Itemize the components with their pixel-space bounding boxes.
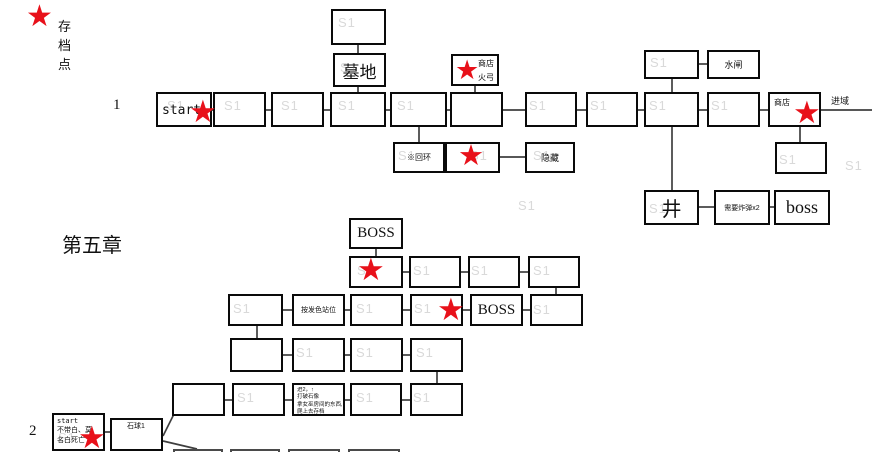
- watermark-text: S1: [167, 98, 185, 113]
- box-shop-firebow-label-0: 商店: [478, 60, 494, 68]
- box-hair-color: 按发色站位: [292, 294, 345, 326]
- row2-number: 2: [29, 423, 37, 440]
- watermark-text: S1: [649, 201, 667, 216]
- watermark-text: S1: [590, 98, 608, 113]
- watermark-text: S1: [650, 55, 668, 70]
- watermark-text: S1: [296, 345, 314, 360]
- box-ch5-boss-top: BOSS: [349, 218, 403, 249]
- box-ch5-boss2-label: BOSS: [478, 302, 516, 319]
- box-ch5-boss-top-label: BOSS: [357, 225, 395, 242]
- save-star-ch5-row3-icon: ★: [437, 295, 465, 326]
- box-shop-right-label-0: 商店: [774, 99, 790, 107]
- row1-number: 1: [113, 97, 121, 114]
- watermark-text: S1: [58, 430, 76, 445]
- box-r1-6: [450, 92, 503, 127]
- box-hair-color-label: 按发色站位: [301, 305, 336, 315]
- box-notes: 进2，↑打破石像拿女巫房间的东西从窗爬上去存档: [292, 383, 345, 416]
- box-boss-ch1-label: boss: [786, 197, 818, 218]
- box-shop-firebow-label-1: 火弓: [478, 74, 494, 82]
- watermark-text: S1: [413, 263, 431, 278]
- watermark-text: S1: [518, 198, 536, 213]
- connector-line: [163, 414, 174, 436]
- save-point-star-icon: ★: [26, 2, 53, 32]
- watermark-text: S1: [237, 390, 255, 405]
- watermark-text: S1: [414, 301, 432, 316]
- box-need-bombs: 需要炸弹x2: [714, 190, 770, 225]
- watermark-text: S1: [711, 98, 729, 113]
- save-star-loop-icon: ★: [458, 141, 484, 170]
- box-watergate-label: 水闸: [724, 58, 742, 71]
- box-notes-text: 进2，↑打破石像拿女巫房间的东西从窗爬上去存档: [297, 387, 342, 417]
- box-mb-1: [172, 383, 225, 416]
- save-star-shop-right-icon: ★: [793, 98, 821, 129]
- watermark-text: S1: [649, 98, 667, 113]
- watermark-text: S1: [224, 98, 242, 113]
- save-star-firebow-icon: ★: [455, 57, 479, 84]
- save-star-start1-icon: ★: [189, 97, 217, 128]
- watermark-text: S1: [397, 98, 415, 113]
- watermark-text: S1: [533, 263, 551, 278]
- box-stone-ball-label-0: 石球1: [127, 423, 145, 430]
- legend-label: 存档点: [58, 16, 71, 73]
- exit-area-label: 进域: [831, 94, 849, 107]
- watermark-text: S1: [233, 301, 251, 316]
- save-star-ch5-row2-icon: ★: [357, 255, 385, 286]
- save-star-start2-icon: ★: [78, 423, 106, 452]
- watermark-text: S1: [356, 390, 374, 405]
- box-notes-text-line: 爬上去存档: [297, 409, 342, 416]
- watermark-text: S1: [529, 98, 547, 113]
- chapter5-title: 第五章: [62, 229, 122, 258]
- box-boss-ch1: boss: [774, 190, 830, 225]
- watermark-text: S1: [779, 152, 797, 167]
- connector-line: [163, 441, 197, 449]
- watermark-text: S1: [340, 60, 358, 75]
- box-watergate: 水闸: [707, 50, 760, 79]
- watermark-text: S1: [413, 390, 431, 405]
- watermark-text: S1: [398, 148, 416, 163]
- map-canvas: ★ 存档点 进域 S1S1S1S1S1S1S1S1S1S1S1S1S1S1S1S…: [0, 0, 874, 452]
- watermark-text: S1: [471, 263, 489, 278]
- box-need-bombs-label: 需要炸弹x2: [724, 203, 759, 213]
- watermark-text: S1: [356, 345, 374, 360]
- watermark-text: S1: [338, 15, 356, 30]
- box-ch5-boss2: BOSS: [470, 294, 523, 326]
- watermark-text: S1: [338, 98, 356, 113]
- box-ch5-r4-1: [230, 338, 283, 372]
- watermark-text: S1: [416, 345, 434, 360]
- watermark-text: S1: [533, 302, 551, 317]
- watermark-text: S1: [281, 98, 299, 113]
- box-notes-text-line: 打破石像: [297, 394, 342, 401]
- box-stone-ball: 石球1: [110, 418, 163, 451]
- watermark-text: S1: [845, 158, 863, 173]
- watermark-text: S1: [533, 148, 551, 163]
- watermark-text: S1: [356, 301, 374, 316]
